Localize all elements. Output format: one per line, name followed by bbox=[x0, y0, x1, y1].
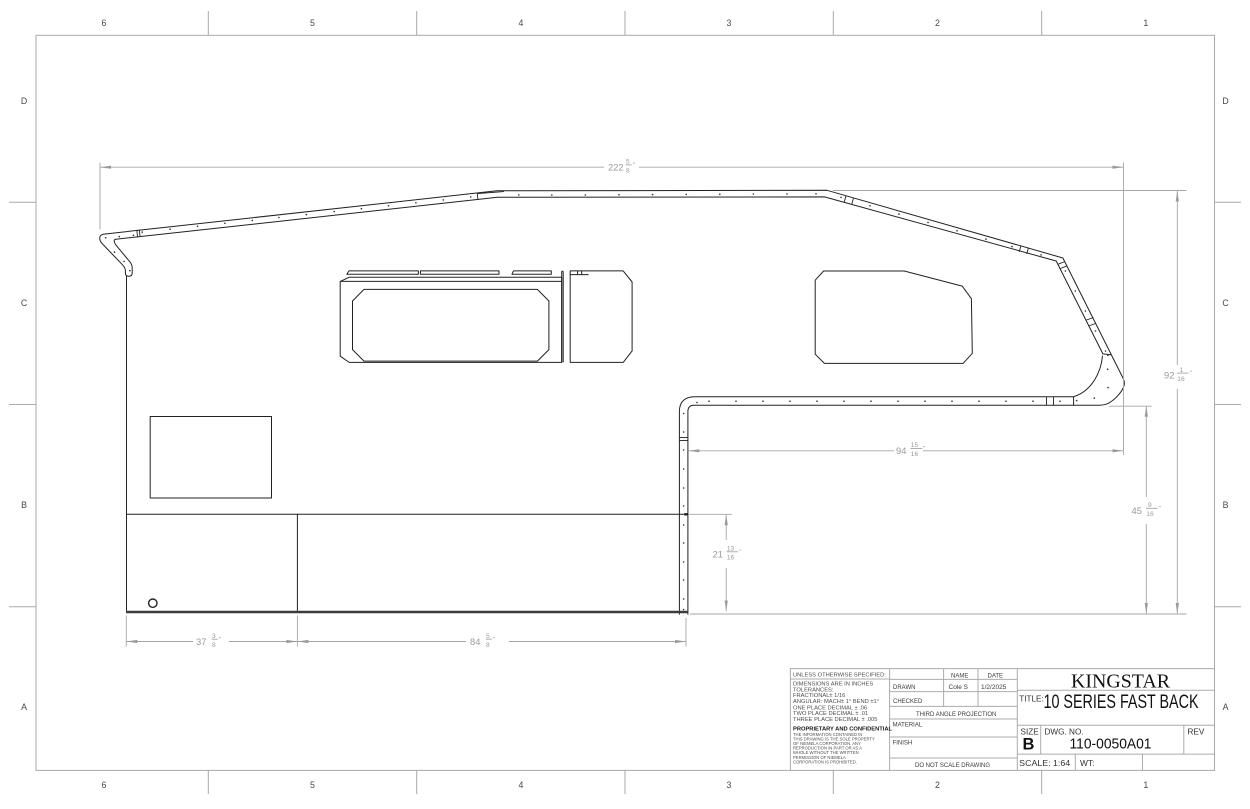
svg-text:110-0050A01: 110-0050A01 bbox=[1070, 737, 1152, 753]
svg-text:B: B bbox=[1023, 736, 1035, 754]
svg-text:TOLERANCES:: TOLERANCES: bbox=[793, 687, 834, 693]
svg-text:A: A bbox=[1223, 702, 1229, 712]
svg-text:16: 16 bbox=[727, 555, 735, 562]
svg-text:FINISH: FINISH bbox=[893, 740, 913, 746]
svg-text:CHECKED: CHECKED bbox=[893, 699, 923, 705]
svg-text:REV: REV bbox=[1188, 728, 1205, 737]
svg-text:4: 4 bbox=[519, 18, 524, 28]
svg-text:4: 4 bbox=[519, 780, 524, 790]
svg-text:5: 5 bbox=[310, 780, 315, 790]
svg-text:16: 16 bbox=[1177, 376, 1185, 383]
svg-text:THIRD ANGLE PROJECTION: THIRD ANGLE PROJECTION bbox=[916, 712, 996, 718]
svg-text:1: 1 bbox=[1143, 18, 1148, 28]
svg-text:D: D bbox=[21, 96, 27, 106]
svg-text:222: 222 bbox=[608, 162, 624, 173]
svg-text:8: 8 bbox=[212, 642, 216, 649]
svg-text:DWG. NO.: DWG. NO. bbox=[1045, 728, 1084, 737]
svg-text:SCALE: 1:64: SCALE: 1:64 bbox=[1019, 758, 1070, 768]
svg-text:TWO PLACE DECIMAL ± .01: TWO PLACE DECIMAL ± .01 bbox=[793, 711, 868, 717]
svg-text:TITLE:: TITLE: bbox=[1019, 695, 1044, 704]
svg-text:16: 16 bbox=[1146, 511, 1154, 518]
svg-text:92: 92 bbox=[1164, 370, 1174, 381]
svg-text:C: C bbox=[21, 298, 28, 308]
svg-text:1/2/2025: 1/2/2025 bbox=[981, 684, 1007, 691]
svg-text:MATERIAL: MATERIAL bbox=[893, 722, 923, 728]
svg-text:21: 21 bbox=[713, 548, 723, 559]
svg-text:UNLESS OTHERWISE SPECIFIED:: UNLESS OTHERWISE SPECIFIED: bbox=[793, 673, 886, 679]
svg-text:ANGULAR: MACH± 1° BEND ±1°: ANGULAR: MACH± 1° BEND ±1° bbox=[793, 699, 879, 705]
svg-text:6: 6 bbox=[102, 18, 107, 28]
svg-text:8: 8 bbox=[626, 168, 630, 175]
svg-text:8: 8 bbox=[486, 642, 490, 649]
svg-text:FRACTIONAL± 1/16: FRACTIONAL± 1/16 bbox=[793, 693, 845, 699]
svg-text:D: D bbox=[1222, 96, 1228, 106]
svg-text:WT:: WT: bbox=[1080, 758, 1094, 768]
svg-text:10 SERIES FAST BACK: 10 SERIES FAST BACK bbox=[1044, 691, 1199, 713]
svg-text:3: 3 bbox=[727, 780, 732, 790]
svg-text:45: 45 bbox=[1132, 505, 1142, 516]
svg-text:KINGSTAR: KINGSTAR bbox=[1071, 672, 1170, 693]
svg-text:1: 1 bbox=[1143, 780, 1148, 790]
svg-text:CORPORATION IS PROHIBITED.: CORPORATION IS PROHIBITED. bbox=[793, 759, 857, 764]
svg-text:NAME: NAME bbox=[951, 674, 968, 680]
svg-text:3: 3 bbox=[727, 18, 732, 28]
svg-text:94: 94 bbox=[896, 445, 906, 456]
svg-text:37: 37 bbox=[196, 636, 206, 647]
svg-text:DO NOT SCALE DRAWING: DO NOT SCALE DRAWING bbox=[915, 763, 990, 769]
svg-text:DIMENSIONS ARE IN INCHES: DIMENSIONS ARE IN INCHES bbox=[793, 682, 873, 688]
svg-text:16: 16 bbox=[911, 451, 919, 458]
svg-text:Cole S: Cole S bbox=[949, 684, 969, 691]
svg-text:B: B bbox=[21, 500, 27, 510]
svg-text:84: 84 bbox=[470, 636, 480, 647]
svg-text:B: B bbox=[1223, 500, 1229, 510]
svg-text:DRAWN: DRAWN bbox=[893, 685, 915, 691]
svg-text:THREE PLACE DECIMAL ± .005: THREE PLACE DECIMAL ± .005 bbox=[793, 717, 877, 723]
svg-text:2: 2 bbox=[935, 18, 940, 28]
svg-text:5: 5 bbox=[310, 18, 315, 28]
svg-text:ONE PLACE DECIMAL ± .06: ONE PLACE DECIMAL ± .06 bbox=[793, 705, 867, 711]
svg-text:DATE: DATE bbox=[988, 674, 1004, 680]
svg-text:C: C bbox=[1222, 298, 1229, 308]
svg-text:6: 6 bbox=[102, 780, 107, 790]
svg-text:A: A bbox=[21, 702, 27, 712]
svg-text:2: 2 bbox=[935, 780, 940, 790]
